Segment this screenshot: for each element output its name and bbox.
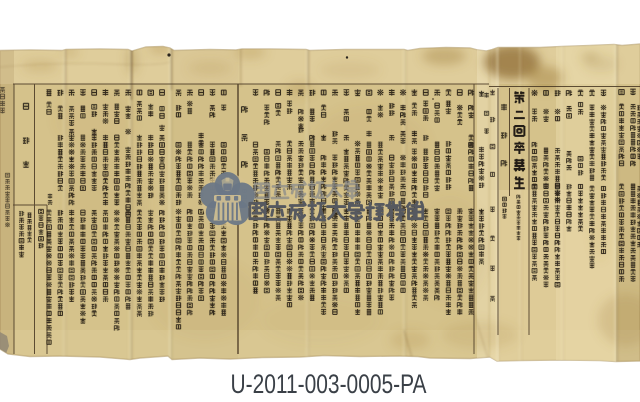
svg-text:U-2011-003-0005-PA: U-2011-003-0005-PA <box>231 369 427 399</box>
